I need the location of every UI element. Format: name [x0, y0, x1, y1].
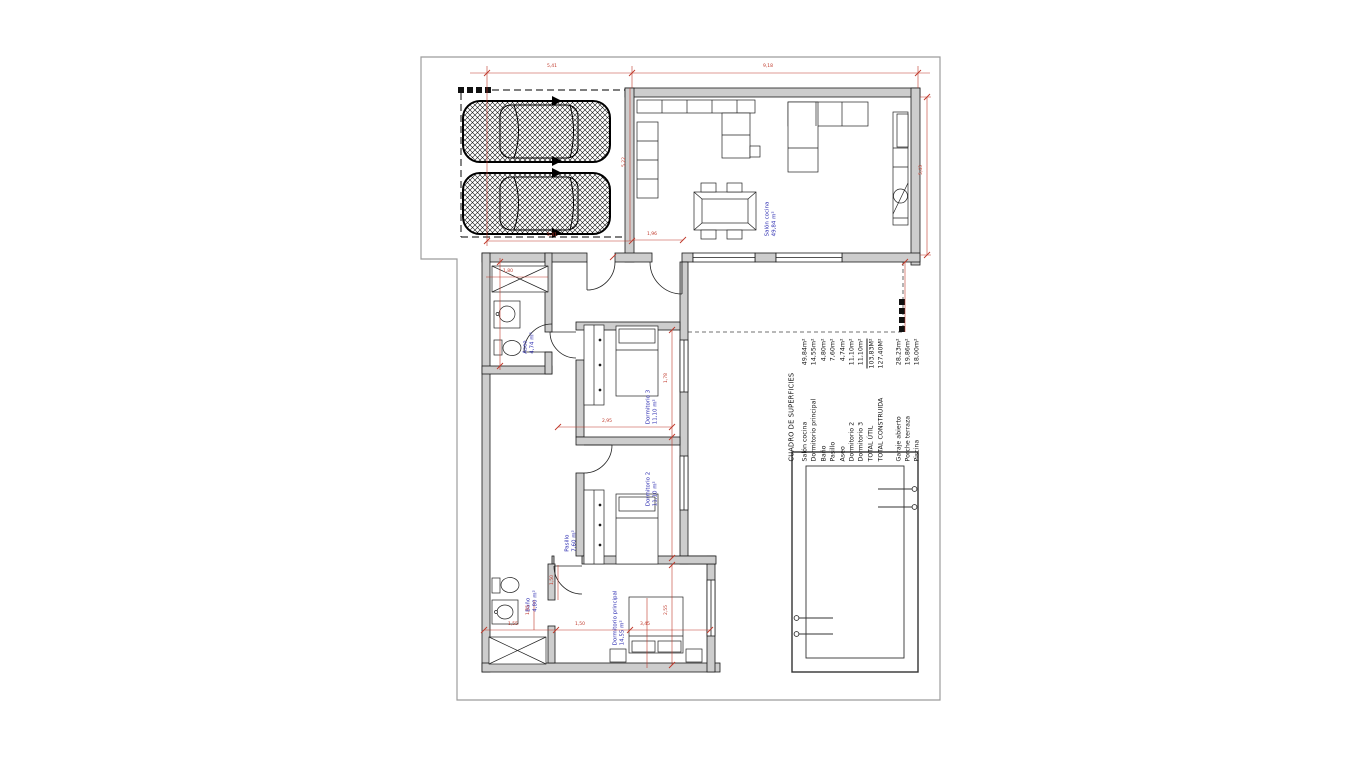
area-table-spacer — [886, 339, 894, 462]
area-table-row: Porche terraza19,86m² — [904, 339, 913, 462]
room-label-aseo: Aseo4,74 m² — [523, 332, 536, 354]
dimension-label: 1,78 — [665, 373, 670, 383]
dimension-label: 1,50 — [551, 575, 556, 585]
dimension-label: 1,55 — [508, 623, 518, 628]
area-table-row: Dormitorio 311,10m² — [857, 339, 866, 462]
floorplan-drawing: Salón cocina49,84 m² Aseo4,74 m² Dormito… — [0, 0, 1366, 768]
area-table-row: Aseo4,74m² — [838, 339, 847, 462]
garage-pillars — [458, 87, 491, 93]
room-label-dormitorio-3: Dormitorio 311,10 m² — [646, 390, 659, 425]
area-table-row: Pasillo7,60m² — [829, 339, 838, 462]
room-label-pasillo: Pasillo7,60 m² — [565, 530, 578, 552]
room-label-dormitorio-2: Dormitorio 211,10 m² — [646, 472, 659, 507]
porch-terrace — [498, 255, 905, 332]
car-1 — [463, 96, 610, 166]
area-table-row: Dormitorio principal14,55m² — [810, 339, 819, 462]
dimension-label: 1,50 — [575, 623, 585, 628]
area-table-row: Piscina18,00m² — [913, 339, 922, 462]
dimension-label: 2,55 — [665, 605, 670, 615]
wall-unit — [893, 112, 908, 225]
dimension-label: 5,41 — [547, 234, 557, 239]
porch-pillars — [899, 299, 905, 332]
room-label-salon-cocina: Salón cocina49,84 m² — [765, 202, 778, 237]
car-2 — [463, 168, 610, 238]
dimension-label: 5,41 — [547, 65, 557, 70]
area-table-title: CUADRO DE SUPERFICIES — [788, 339, 796, 462]
pool — [792, 452, 918, 672]
dimension-label: 9,18 — [763, 65, 773, 70]
area-table-row: Dormitorio 211,10m² — [848, 339, 857, 462]
dimension-label: 1,96 — [647, 233, 657, 238]
floorplan-canvas — [0, 0, 1366, 768]
dimension-label: 2,95 — [602, 420, 612, 425]
room-label-dormitorio-principal: Dormitorio principal14,55 m² — [613, 591, 626, 646]
sofa — [788, 102, 868, 172]
area-table-row: Garaje abierto28,23m² — [894, 339, 903, 462]
dimension-label: 1,80 — [503, 270, 513, 275]
area-table-row-total: TOTAL CONSTRUIDA127,40M² — [877, 339, 886, 462]
dimension-label: 5,43 — [920, 165, 925, 175]
dimension-label: 3,45 — [640, 623, 650, 628]
area-table: CUADRO DE SUPERFICIES Salón cocina49,84m… — [788, 339, 934, 462]
dimension-label: 5,22 — [623, 157, 628, 167]
bathroom-fixtures — [489, 266, 548, 664]
area-table-row: Baño4,80m² — [819, 339, 828, 462]
area-table-row: Salón cocina49,84m² — [801, 339, 810, 462]
dining-table — [694, 183, 756, 239]
dimension-label: 1,55 — [527, 605, 532, 615]
area-table-row-total: TOTAL ÚTIL103,83M² — [866, 339, 876, 462]
